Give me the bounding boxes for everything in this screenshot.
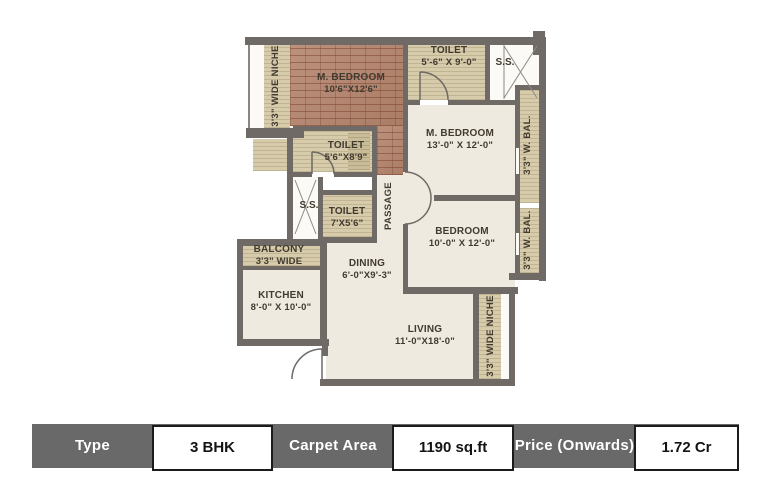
balcony-right-top-label: 3'3" W. BAL.	[522, 109, 534, 181]
carpet-area-value: 1190 sq.ft	[392, 425, 514, 471]
balcony-right-bottom-label: 3'3" W. BAL.	[522, 207, 534, 273]
carpet-area-label: Carpet Area	[273, 424, 393, 468]
ledge-floor	[253, 139, 287, 171]
price-value: 1.72 Cr	[634, 425, 739, 471]
master-bedroom-2-label: M. BEDROOM 13'-0" X 12'-0"	[405, 128, 515, 152]
living-label: LIVING 11'-0"X18'-0"	[365, 324, 485, 348]
toilet-mid-label: TOILET 5'6"X8'9"	[306, 140, 386, 164]
niche-left-label: 3'3" WIDE NICHE	[270, 38, 282, 134]
bedroom-label: BEDROOM 10'-0" X 12'-0"	[407, 226, 517, 250]
niche-bottom-window	[501, 294, 509, 379]
dining-label: DINING 6'-0"X9'-3"	[317, 258, 417, 282]
toilet-top-label: TOILET 5'-6" X 9'-0"	[399, 45, 499, 69]
passage-label: PASSAGE	[383, 170, 395, 242]
type-label: Type	[32, 424, 153, 468]
price-label: Price (Onwards)	[514, 424, 635, 468]
niche-bottom-label: 3'3" WIDE NICHE	[485, 288, 497, 384]
service-shaft-top-label: S.S.	[485, 57, 525, 69]
kitchen-label: KITCHEN 8'-0" X 10'-0"	[231, 290, 331, 314]
master-bedroom-1-label: M. BEDROOM 10'6"X12'6"	[296, 72, 406, 96]
toilet-small-label: TOILET 7'X5'6"	[307, 206, 387, 230]
type-value: 3 BHK	[152, 425, 273, 471]
niche-left-window	[250, 45, 264, 128]
balcony-left-label: BALCONY 3'3" WIDE	[239, 244, 319, 268]
